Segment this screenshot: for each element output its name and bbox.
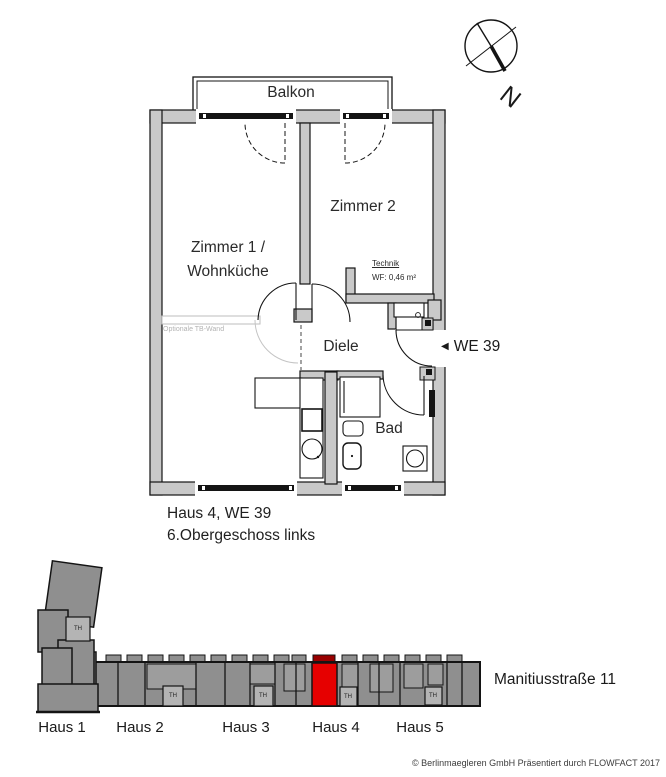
stairwell-label: TH (68, 626, 88, 632)
stairwell-label: TH (253, 693, 273, 699)
haus2-label: Haus 2 (105, 719, 175, 736)
stairwell-label: TH (163, 693, 183, 699)
left-arrow-icon: ◀ (441, 342, 449, 352)
site-plan (36, 561, 480, 712)
room2-label: Zimmer 2 (290, 198, 436, 216)
unit-pointer: ◀ WE 39 (441, 338, 500, 356)
balcony-label: Balkon (210, 84, 372, 102)
hall-label: Diele (300, 338, 382, 356)
floorplan-drawing (0, 0, 666, 777)
haus3-label: Haus 3 (211, 719, 281, 736)
room1-label-line2: Wohnküche (145, 260, 311, 284)
bath-label: Bad (358, 420, 420, 438)
unit-pointer-label: WE 39 (454, 338, 501, 356)
haus1-label: Haus 1 (27, 719, 97, 736)
floorplan-page: Balkon Zimmer 2 Zimmer 1 / Wohnküche Tec… (0, 0, 666, 777)
plan-caption: Haus 4, WE 39 6.Obergeschoss links (167, 503, 315, 547)
plan-caption-line2: 6.Obergeschoss links (167, 525, 315, 547)
haus5-label: Haus 5 (385, 719, 455, 736)
kitchen-fixtures (255, 378, 323, 478)
site-plan-highlight-haus4 (312, 663, 337, 706)
stairwell-label: TH (423, 693, 443, 699)
technik-fixture (394, 303, 424, 317)
room1-label: Zimmer 1 / Wohnküche (145, 236, 311, 284)
stairwell-label: TH (338, 694, 358, 700)
technik-label: Technik (372, 259, 399, 268)
haus4-label: Haus 4 (301, 719, 371, 736)
copyright-notice: © Berlinmaegleren GmbH Präsentiert durch… (412, 758, 660, 768)
street-label: Manitiusstraße 11 (494, 671, 616, 689)
optional-wall (162, 316, 298, 363)
room1-label-line1: Zimmer 1 / (145, 236, 311, 260)
optional-wall-label: Optionale TB-Wand (163, 326, 224, 333)
technik-area-label: WF: 0,46 m² (372, 273, 416, 282)
plan-caption-line1: Haus 4, WE 39 (167, 503, 315, 525)
compass-icon (465, 20, 517, 72)
